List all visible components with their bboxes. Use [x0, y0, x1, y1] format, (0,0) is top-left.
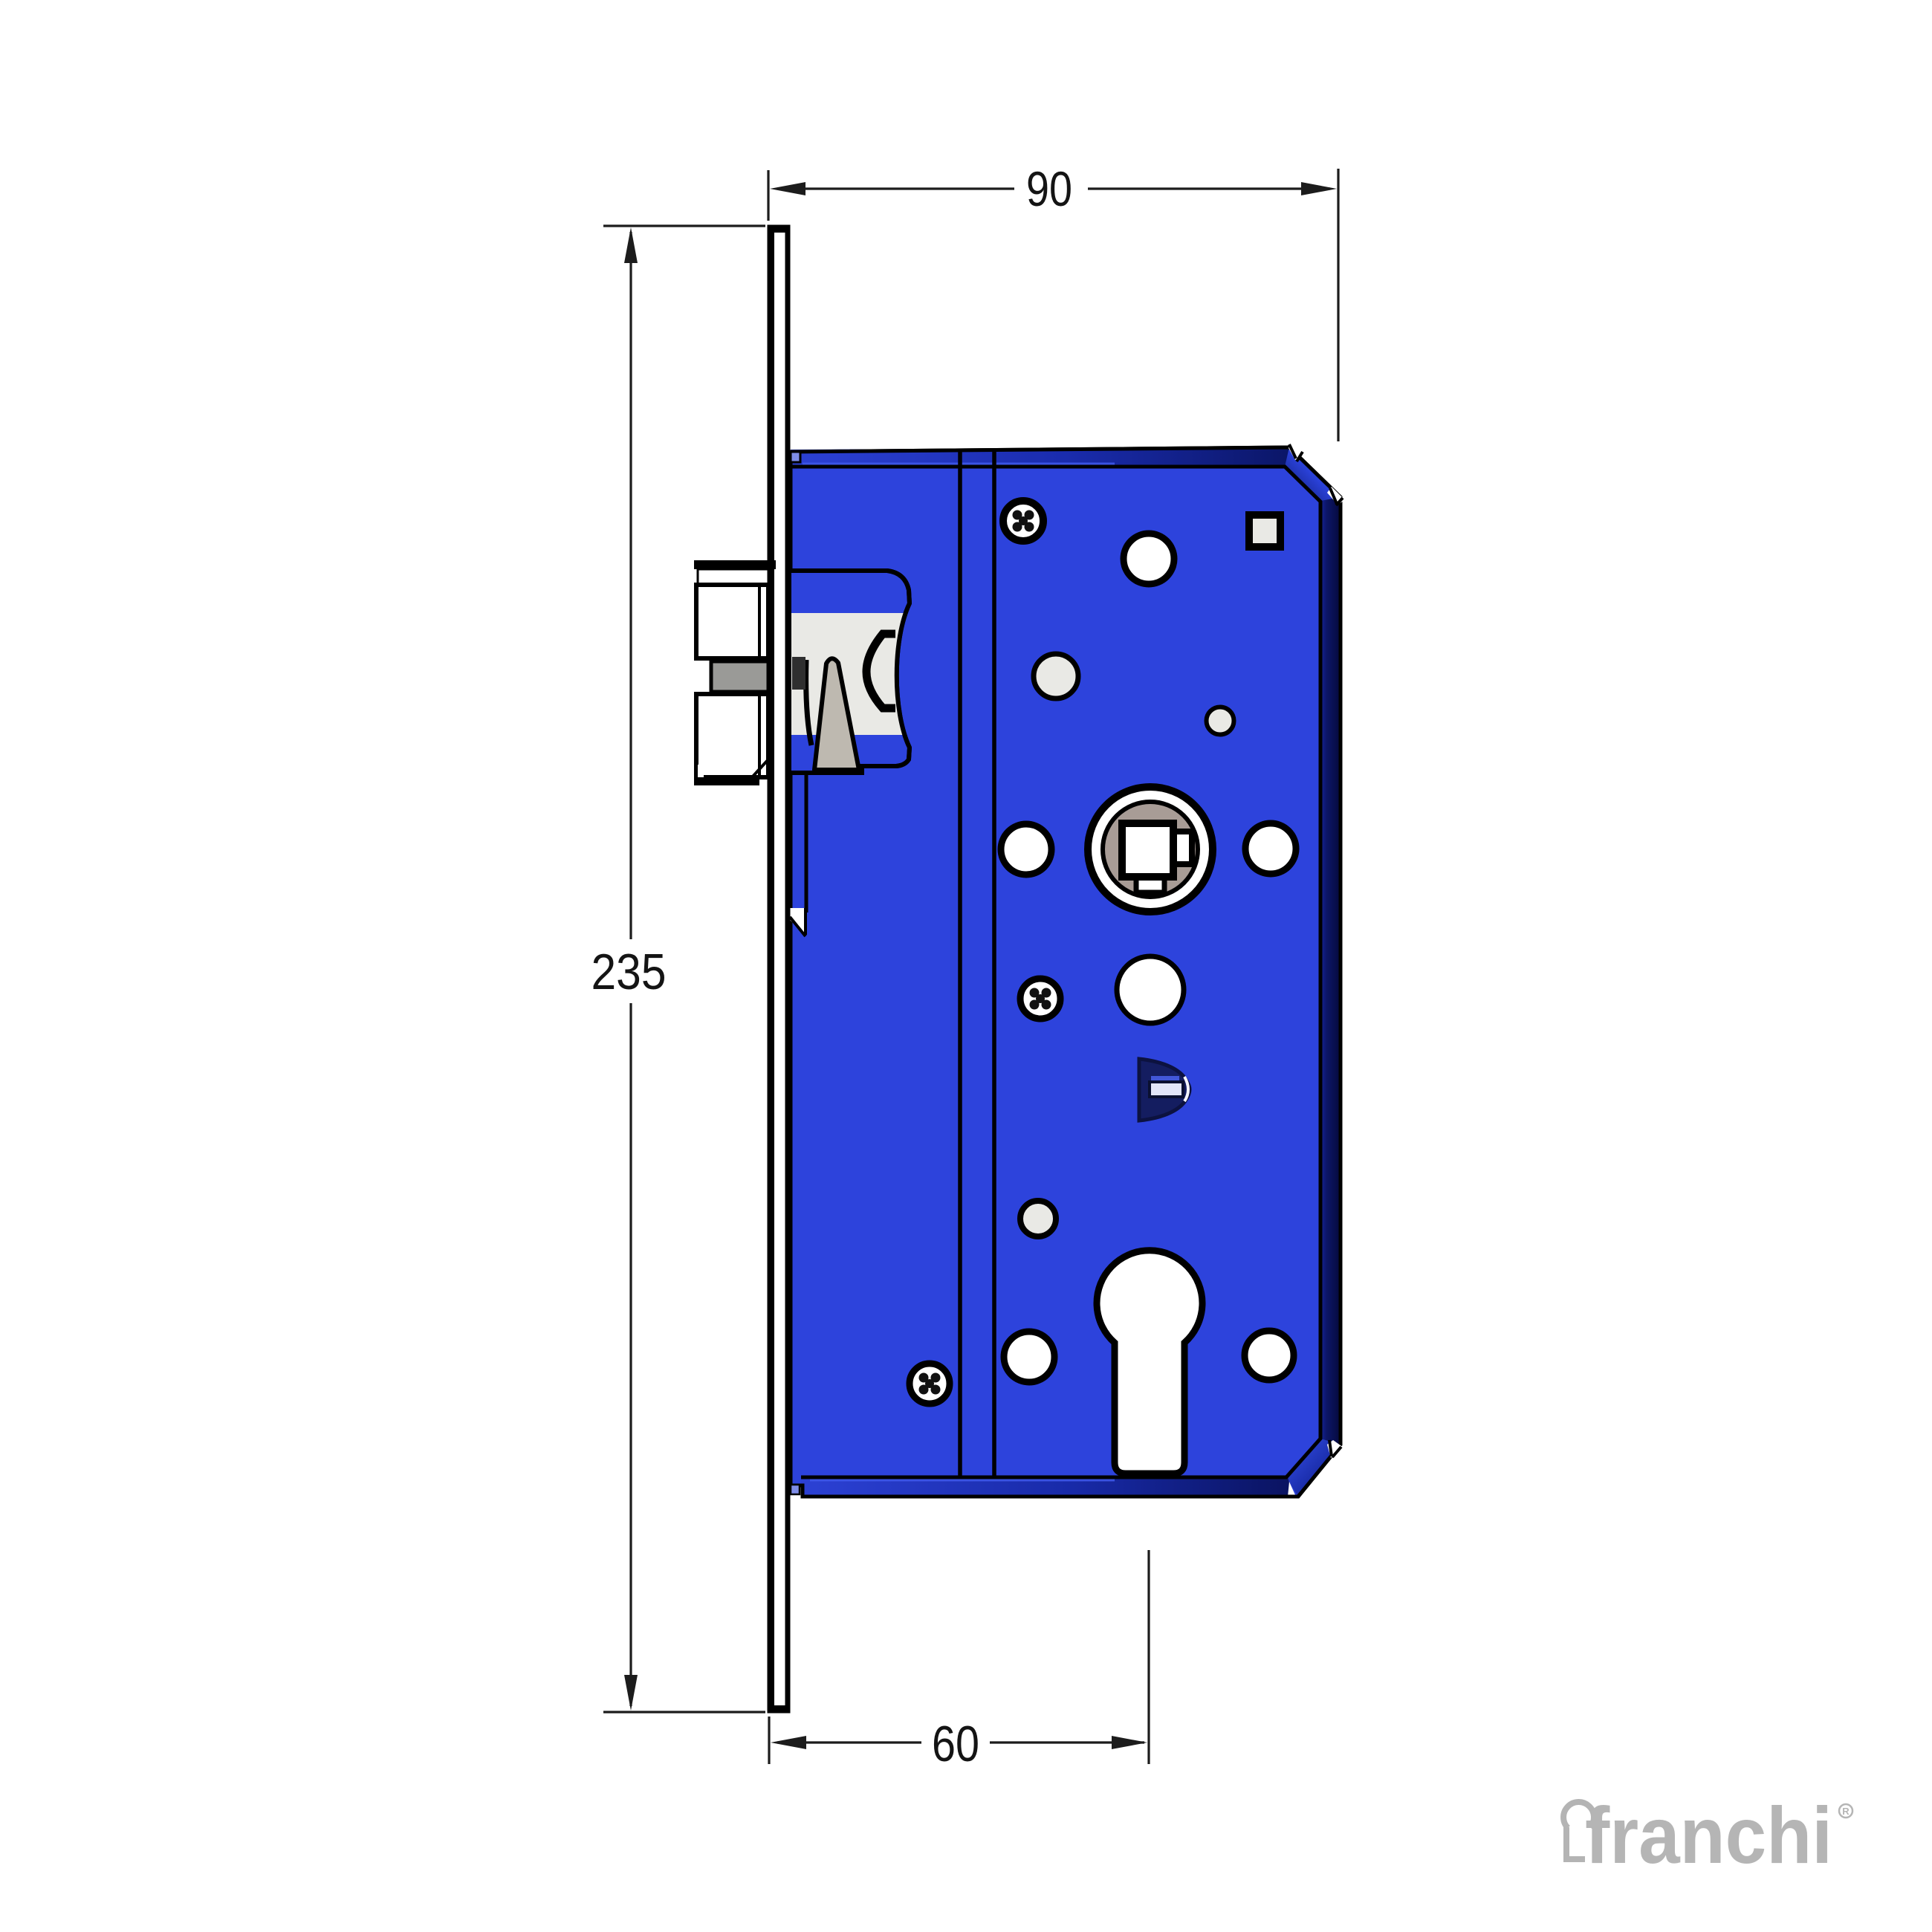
svg-text:60: 60	[932, 1716, 979, 1772]
svg-text:R: R	[1842, 1806, 1850, 1817]
svg-text:90: 90	[1026, 161, 1072, 216]
svg-text:franchi: franchi	[1585, 1790, 1832, 1880]
svg-text:235: 235	[591, 944, 667, 1000]
